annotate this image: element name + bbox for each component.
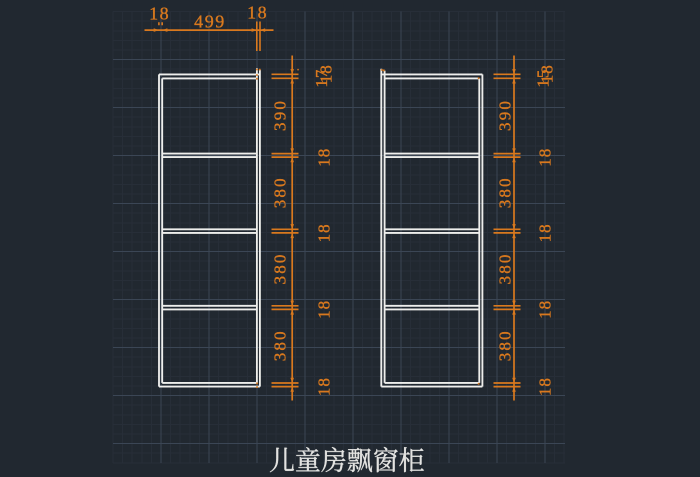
- svg-text:380: 380: [496, 176, 515, 208]
- svg-text:380: 380: [496, 329, 515, 361]
- svg-text:18: 18: [536, 148, 555, 167]
- svg-text:18: 18: [315, 223, 334, 242]
- svg-text:18: 18: [536, 223, 555, 242]
- svg-text:18: 18: [149, 3, 170, 23]
- svg-text:380: 380: [270, 252, 289, 284]
- svg-text:390: 390: [270, 99, 289, 131]
- svg-text:499: 499: [194, 12, 226, 32]
- svg-text:18: 18: [247, 3, 268, 23]
- svg-text:380: 380: [496, 252, 515, 284]
- svg-text:18: 18: [315, 377, 334, 396]
- svg-text:18: 18: [536, 300, 555, 319]
- svg-text:18: 18: [315, 148, 334, 167]
- svg-text:18: 18: [316, 64, 335, 83]
- svg-text:380: 380: [270, 176, 289, 208]
- svg-text:18: 18: [536, 377, 555, 396]
- svg-text:390: 390: [496, 99, 515, 131]
- svg-text:18: 18: [538, 64, 557, 83]
- svg-text:18: 18: [315, 300, 334, 319]
- svg-text:380: 380: [270, 329, 289, 361]
